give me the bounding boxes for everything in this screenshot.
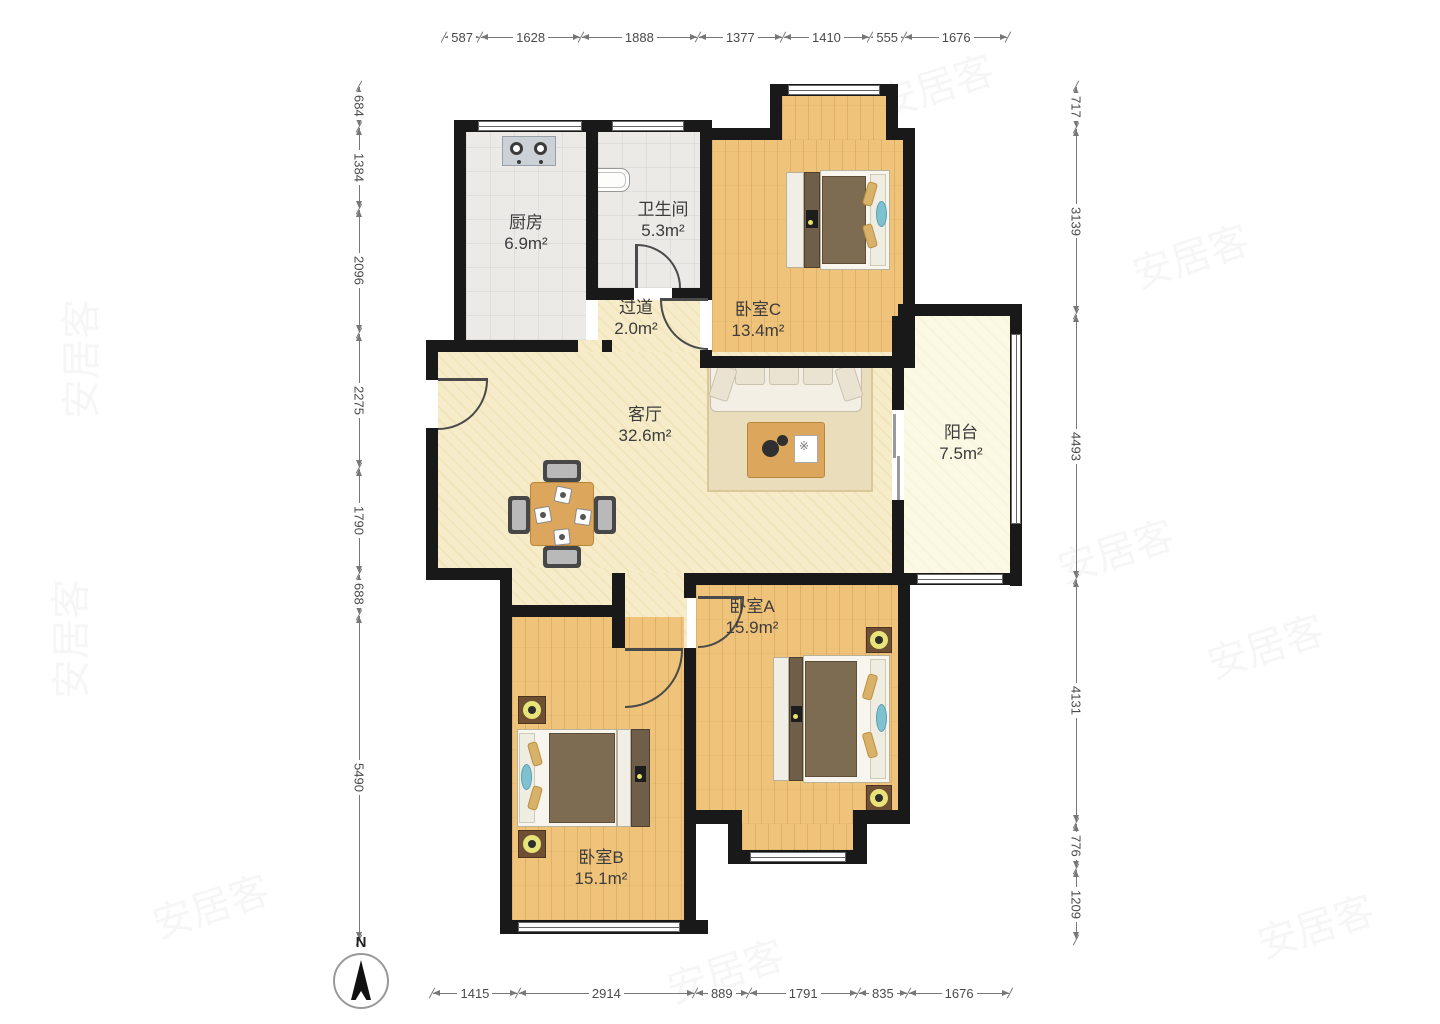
door-leaf-entry bbox=[438, 378, 488, 381]
dimension-value: 684 bbox=[353, 92, 366, 120]
stove-knob bbox=[539, 160, 543, 164]
dimension-segment: 1791 bbox=[749, 984, 858, 1002]
watermark: 安居客 bbox=[144, 858, 276, 950]
dimension-value: 5490 bbox=[353, 760, 366, 795]
sofa-cushion bbox=[769, 365, 799, 385]
dining-chair bbox=[508, 496, 530, 534]
door-leaf-bathroom bbox=[635, 244, 638, 288]
room-name: 卧室C bbox=[708, 299, 808, 320]
window bbox=[917, 574, 1003, 584]
dimension-value: 587 bbox=[448, 31, 476, 44]
dimension-value: 1384 bbox=[353, 150, 366, 185]
dimension-segment: 2096 bbox=[350, 209, 368, 333]
room-area: 32.6m² bbox=[595, 425, 695, 446]
dimension-segment: 1888 bbox=[581, 28, 698, 46]
dimension-segment: 776 bbox=[1067, 823, 1085, 869]
lamp-icon bbox=[870, 631, 888, 649]
dimension-value: 1676 bbox=[939, 31, 974, 44]
nightstand bbox=[518, 830, 546, 858]
room-name: 卧室A bbox=[702, 596, 802, 617]
wall-segment bbox=[898, 304, 1022, 316]
dining-table bbox=[530, 482, 594, 546]
dimension-value: 4131 bbox=[1070, 683, 1083, 718]
compass-needle-notch bbox=[355, 991, 367, 1001]
dimension-value: 555 bbox=[873, 31, 901, 44]
door-leaf-bedroom-b bbox=[625, 648, 683, 651]
dimension-chain-bottom: 1415291488917918351676 bbox=[432, 984, 1010, 1002]
dimension-value: 2096 bbox=[353, 253, 366, 288]
dimension-segment: 684 bbox=[350, 86, 368, 127]
dimension-segment: 4131 bbox=[1067, 579, 1085, 823]
nightstand bbox=[866, 627, 892, 653]
wall-segment bbox=[602, 340, 612, 352]
watermark: 安居客 bbox=[1199, 598, 1331, 690]
sofa-cushion bbox=[803, 365, 833, 385]
floor-plan-canvas: 58716281888137714105551676 1415291488917… bbox=[0, 0, 1440, 1024]
wall-segment bbox=[853, 810, 898, 824]
dimension-value: 1415 bbox=[457, 987, 492, 1000]
room-name: 卫生间 bbox=[613, 199, 713, 220]
dimension-segment: 1676 bbox=[908, 984, 1010, 1002]
place-setting bbox=[554, 486, 573, 505]
room-label-bedroom-c: 卧室C 13.4m² bbox=[708, 299, 808, 341]
wardrobe-bedroom-a bbox=[773, 657, 789, 781]
wall-segment bbox=[684, 573, 696, 598]
place-setting bbox=[574, 508, 592, 526]
dining-chair bbox=[543, 460, 581, 482]
dimension-value: 1791 bbox=[786, 987, 821, 1000]
dimension-chain-left: 68413842096227517906885490 bbox=[350, 86, 368, 940]
dining-chair bbox=[543, 546, 581, 568]
room-area: 15.9m² bbox=[702, 617, 802, 638]
place-setting bbox=[553, 528, 571, 546]
floor-bedroom-a-bay bbox=[742, 824, 853, 850]
dimension-value: 889 bbox=[708, 987, 736, 1000]
room-name: 客厅 bbox=[595, 404, 695, 425]
room-label-bedroom-a: 卧室A 15.9m² bbox=[702, 596, 802, 638]
stove-burner bbox=[534, 142, 547, 155]
dimension-segment: 1790 bbox=[350, 468, 368, 574]
window bbox=[788, 85, 880, 95]
nightstand bbox=[518, 696, 546, 724]
pillow-teal bbox=[876, 201, 887, 227]
tv-bedroom-c bbox=[806, 210, 818, 228]
sliding-door bbox=[897, 456, 900, 500]
bed-blanket-bedroom-a bbox=[805, 661, 857, 777]
room-area: 2.0m² bbox=[586, 318, 686, 339]
lamp-icon bbox=[523, 701, 541, 719]
teacup bbox=[777, 435, 788, 446]
dimension-value: 835 bbox=[869, 987, 897, 1000]
wall-segment bbox=[454, 120, 466, 352]
room-label-balcony: 阳台 7.5m² bbox=[911, 422, 1011, 464]
dimension-segment: 5490 bbox=[350, 615, 368, 940]
wall-segment bbox=[500, 580, 512, 934]
nightstand bbox=[866, 785, 892, 811]
dimension-chain-top: 58716281888137714105551676 bbox=[444, 28, 1008, 46]
stove bbox=[502, 136, 556, 166]
dining-chair bbox=[594, 496, 616, 534]
wall-segment bbox=[886, 84, 898, 140]
dimension-segment: 717 bbox=[1067, 86, 1085, 128]
window bbox=[518, 922, 680, 932]
dimension-segment: 2275 bbox=[350, 333, 368, 468]
wall-segment bbox=[426, 428, 438, 580]
room-area: 13.4m² bbox=[708, 320, 808, 341]
dimension-value: 1410 bbox=[809, 31, 844, 44]
sofa-cushion bbox=[735, 365, 765, 385]
room-name: 厨房 bbox=[476, 212, 576, 233]
watermark: 安居客 bbox=[1124, 208, 1256, 300]
dimension-value: 2275 bbox=[353, 383, 366, 418]
dimension-segment: 1415 bbox=[432, 984, 518, 1002]
compass: N bbox=[333, 934, 389, 1009]
place-setting bbox=[534, 506, 553, 525]
bed-blanket-bedroom-b bbox=[549, 733, 615, 823]
dimension-segment: 587 bbox=[444, 28, 480, 46]
window bbox=[750, 852, 846, 862]
wall-segment bbox=[712, 128, 770, 140]
room-label-living: 客厅 32.6m² bbox=[595, 404, 695, 446]
dimension-segment: 889 bbox=[695, 984, 749, 1002]
window bbox=[478, 121, 582, 131]
dimension-value: 1676 bbox=[942, 987, 977, 1000]
wall-segment bbox=[903, 128, 915, 368]
wall-segment bbox=[426, 340, 438, 380]
lamp-icon bbox=[523, 835, 541, 853]
dimension-segment: 555 bbox=[870, 28, 904, 46]
room-label-kitchen: 厨房 6.9m² bbox=[476, 212, 576, 254]
wall-segment bbox=[454, 340, 578, 352]
room-area: 5.3m² bbox=[613, 220, 713, 241]
room-area: 6.9m² bbox=[476, 233, 576, 254]
magazine bbox=[794, 435, 818, 463]
wall-segment bbox=[700, 356, 915, 368]
wall-segment bbox=[426, 568, 512, 580]
floor-kitchen-doorway bbox=[578, 340, 602, 352]
watermark: 安居客 bbox=[1249, 878, 1381, 970]
dimension-value: 1790 bbox=[353, 503, 366, 538]
wall-segment bbox=[892, 316, 904, 410]
tv-bedroom-b bbox=[635, 766, 646, 782]
stove-burner bbox=[510, 142, 523, 155]
floor-living-south bbox=[512, 568, 612, 605]
dimension-value: 3139 bbox=[1070, 204, 1083, 239]
bed-blanket-bedroom-c bbox=[822, 176, 866, 264]
dimension-segment: 1377 bbox=[698, 28, 783, 46]
wall-segment bbox=[586, 132, 598, 288]
stove-knob bbox=[517, 160, 521, 164]
floor-bedroom-c-bay bbox=[782, 96, 886, 140]
lamp-icon bbox=[870, 789, 888, 807]
dimension-segment: 1209 bbox=[1067, 869, 1085, 940]
watermark: 安居客 bbox=[49, 299, 107, 419]
dimension-segment: 3139 bbox=[1067, 128, 1085, 313]
dimension-segment: 1410 bbox=[783, 28, 870, 46]
room-name: 阳台 bbox=[911, 422, 1011, 443]
dimension-value: 717 bbox=[1070, 93, 1083, 121]
dimension-value: 2914 bbox=[589, 987, 624, 1000]
dimension-value: 4493 bbox=[1070, 429, 1083, 464]
dimension-value: 1888 bbox=[622, 31, 657, 44]
dimension-segment: 1676 bbox=[904, 28, 1008, 46]
dimension-segment: 4493 bbox=[1067, 314, 1085, 579]
wall-segment bbox=[684, 648, 696, 934]
dimension-segment: 2914 bbox=[518, 984, 695, 1002]
room-name: 卧室B bbox=[551, 847, 651, 868]
dimension-chain-right: 7173139449341317761209 bbox=[1067, 86, 1085, 940]
dimension-segment: 1628 bbox=[480, 28, 581, 46]
room-area: 15.1m² bbox=[551, 868, 651, 889]
tv-cabinet-bedroom-b bbox=[617, 729, 631, 827]
room-name: 过道 bbox=[586, 297, 686, 318]
dimension-value: 688 bbox=[353, 580, 366, 608]
pillow-teal bbox=[876, 704, 887, 732]
room-area: 7.5m² bbox=[911, 443, 1011, 464]
floor-plan: 厨房 6.9m² 卫生间 5.3m² 过道 2.0m² 卧室C 13.4m² 客… bbox=[420, 84, 1036, 950]
window bbox=[612, 121, 684, 131]
wardrobe-bedroom-c bbox=[786, 172, 804, 268]
sofa-cushion bbox=[708, 364, 738, 403]
dimension-segment: 835 bbox=[858, 984, 909, 1002]
dimension-value: 1628 bbox=[513, 31, 548, 44]
window bbox=[1011, 334, 1021, 524]
dimension-value: 1377 bbox=[723, 31, 758, 44]
dimension-value: 776 bbox=[1070, 832, 1083, 860]
dimension-value: 1209 bbox=[1070, 887, 1083, 922]
room-label-bathroom: 卫生间 5.3m² bbox=[613, 199, 713, 241]
wall-segment bbox=[500, 605, 612, 617]
dimension-segment: 688 bbox=[350, 574, 368, 615]
compass-ring bbox=[333, 953, 389, 1009]
watermark: 安居客 bbox=[39, 579, 97, 699]
sliding-door bbox=[893, 414, 896, 458]
compass-north-label: N bbox=[333, 934, 389, 951]
sofa-cushion bbox=[834, 364, 864, 403]
coffee-table bbox=[747, 422, 825, 478]
room-label-hallway: 过道 2.0m² bbox=[586, 297, 686, 339]
wall-segment bbox=[612, 573, 625, 648]
wall-segment bbox=[892, 500, 904, 574]
room-label-bedroom-b: 卧室B 15.1m² bbox=[551, 847, 651, 889]
tv-bedroom-a bbox=[791, 706, 802, 722]
wall-segment bbox=[898, 573, 910, 824]
dimension-segment: 1384 bbox=[350, 127, 368, 209]
pillow-teal bbox=[521, 764, 532, 790]
